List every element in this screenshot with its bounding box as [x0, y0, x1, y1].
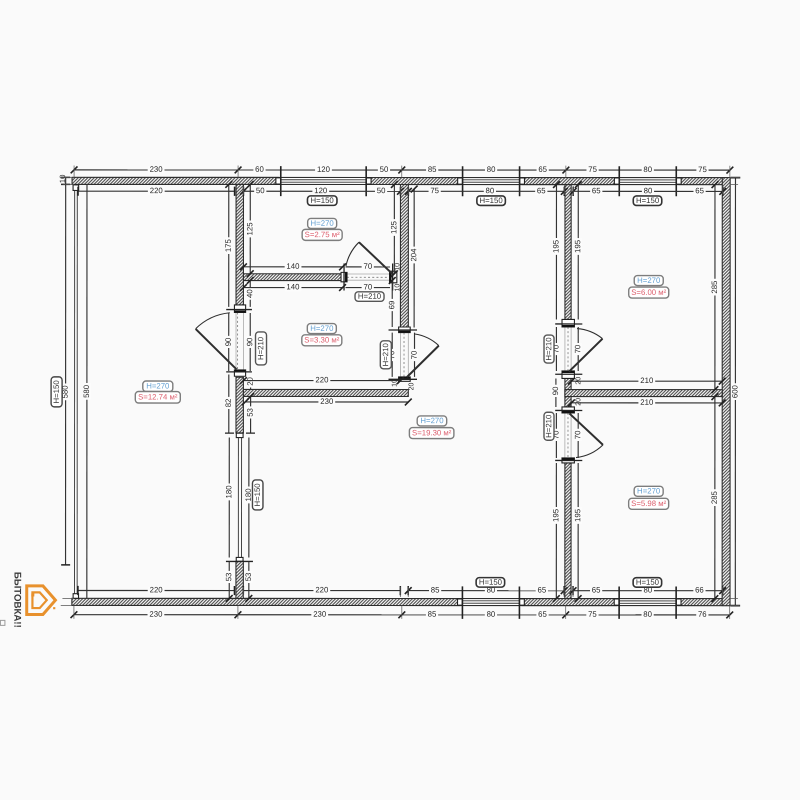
svg-text:S=19.30 м²: S=19.30 м² — [412, 428, 452, 437]
svg-text:S=3.30 м²: S=3.30 м² — [304, 336, 339, 345]
svg-text:H=210: H=210 — [358, 292, 382, 301]
svg-text:53: 53 — [224, 573, 233, 582]
svg-text:70: 70 — [573, 344, 582, 353]
svg-text:80: 80 — [643, 610, 652, 619]
svg-text:40: 40 — [245, 289, 254, 298]
svg-text:75: 75 — [430, 186, 439, 195]
svg-text:180: 180 — [224, 485, 233, 499]
svg-text:H=150: H=150 — [311, 196, 335, 205]
svg-text:H=150: H=150 — [636, 578, 660, 587]
svg-text:70: 70 — [363, 282, 372, 291]
svg-text:195: 195 — [551, 508, 560, 522]
svg-text:195: 195 — [573, 239, 582, 253]
svg-text:H=270: H=270 — [637, 276, 661, 285]
svg-text:БЫТОВКА!!: БЫТОВКА!! — [11, 572, 22, 628]
svg-text:230: 230 — [320, 397, 334, 406]
svg-text:53: 53 — [244, 573, 253, 582]
svg-text:S=6.00 м²: S=6.00 м² — [631, 288, 666, 297]
svg-text:65: 65 — [537, 586, 546, 595]
svg-text:120: 120 — [317, 165, 331, 174]
svg-text:50: 50 — [256, 186, 265, 195]
svg-text:220: 220 — [150, 585, 164, 594]
svg-text:H=150: H=150 — [479, 196, 503, 205]
svg-text:75: 75 — [588, 165, 597, 174]
svg-text:195: 195 — [573, 508, 582, 522]
svg-text:S=2.75 м²: S=2.75 м² — [305, 230, 340, 239]
svg-text:10: 10 — [58, 174, 67, 183]
svg-text:60: 60 — [255, 165, 264, 174]
svg-text:70: 70 — [573, 430, 582, 439]
svg-text:65: 65 — [538, 610, 547, 619]
svg-text:H=270: H=270 — [146, 381, 170, 390]
svg-text:80: 80 — [486, 186, 495, 195]
svg-text:50: 50 — [380, 165, 389, 174]
svg-text:70: 70 — [364, 262, 373, 271]
svg-text:H=210: H=210 — [256, 336, 265, 360]
svg-text:70: 70 — [410, 350, 419, 359]
svg-text:10: 10 — [394, 284, 401, 292]
svg-text:125: 125 — [245, 222, 254, 236]
svg-text:90: 90 — [551, 386, 560, 395]
svg-text:69: 69 — [387, 301, 396, 310]
svg-text:65: 65 — [592, 186, 601, 195]
svg-text:140: 140 — [286, 262, 300, 271]
svg-text:H=270: H=270 — [637, 487, 661, 496]
svg-text:195: 195 — [552, 239, 561, 253]
svg-text:H=270: H=270 — [311, 219, 335, 228]
svg-text:75: 75 — [698, 165, 707, 174]
svg-text:230: 230 — [313, 610, 327, 619]
svg-text:50: 50 — [377, 186, 386, 195]
svg-text:220: 220 — [315, 375, 329, 384]
svg-text:230: 230 — [149, 610, 163, 619]
svg-text:125: 125 — [389, 220, 398, 234]
svg-text:65: 65 — [592, 586, 601, 595]
svg-text:H=210: H=210 — [544, 414, 553, 438]
svg-text:285: 285 — [710, 280, 719, 294]
svg-text:285: 285 — [710, 490, 719, 504]
svg-text:75: 75 — [588, 610, 597, 619]
svg-text:65: 65 — [537, 186, 546, 195]
svg-text:85: 85 — [428, 610, 437, 619]
svg-text:80: 80 — [644, 186, 653, 195]
svg-text:85: 85 — [431, 585, 440, 594]
svg-text:20: 20 — [575, 398, 582, 406]
svg-text:H=210: H=210 — [544, 337, 553, 361]
svg-text:210: 210 — [640, 398, 654, 407]
svg-text:H=270: H=270 — [310, 324, 334, 333]
svg-text:80: 80 — [643, 165, 652, 174]
svg-text:120: 120 — [314, 186, 328, 195]
svg-text:H=150: H=150 — [253, 483, 262, 507]
svg-text:175: 175 — [224, 238, 233, 252]
svg-text:S=12.74 м²: S=12.74 м² — [138, 392, 178, 401]
svg-text:140: 140 — [286, 282, 300, 291]
svg-text:580: 580 — [82, 384, 91, 398]
svg-text:210: 210 — [640, 376, 654, 385]
svg-text:76: 76 — [698, 610, 707, 619]
svg-text:90: 90 — [245, 337, 254, 346]
svg-text:230: 230 — [150, 165, 164, 174]
svg-text:20: 20 — [575, 377, 582, 385]
svg-text:20: 20 — [408, 383, 415, 391]
svg-text:53: 53 — [246, 408, 255, 417]
svg-text:220: 220 — [150, 186, 164, 195]
svg-text:180: 180 — [244, 488, 253, 502]
svg-text:H=150: H=150 — [52, 380, 61, 404]
svg-text:80: 80 — [487, 610, 496, 619]
svg-text:65: 65 — [538, 165, 547, 174]
svg-text:H=210: H=210 — [381, 343, 390, 367]
svg-text:600: 600 — [730, 384, 739, 398]
svg-text:90: 90 — [224, 337, 233, 346]
svg-text:H=270: H=270 — [420, 416, 444, 425]
svg-text:204: 204 — [409, 248, 418, 262]
svg-text:66: 66 — [695, 586, 704, 595]
svg-text:S=5.98 м²: S=5.98 м² — [631, 499, 666, 508]
svg-text:10: 10 — [394, 263, 401, 271]
svg-text:H=150: H=150 — [479, 578, 503, 587]
svg-text:80: 80 — [487, 165, 496, 174]
svg-text:85: 85 — [428, 165, 437, 174]
svg-text:82: 82 — [224, 399, 233, 408]
svg-text:H=150: H=150 — [636, 196, 660, 205]
svg-text:220: 220 — [315, 585, 329, 594]
svg-text:65: 65 — [695, 186, 704, 195]
